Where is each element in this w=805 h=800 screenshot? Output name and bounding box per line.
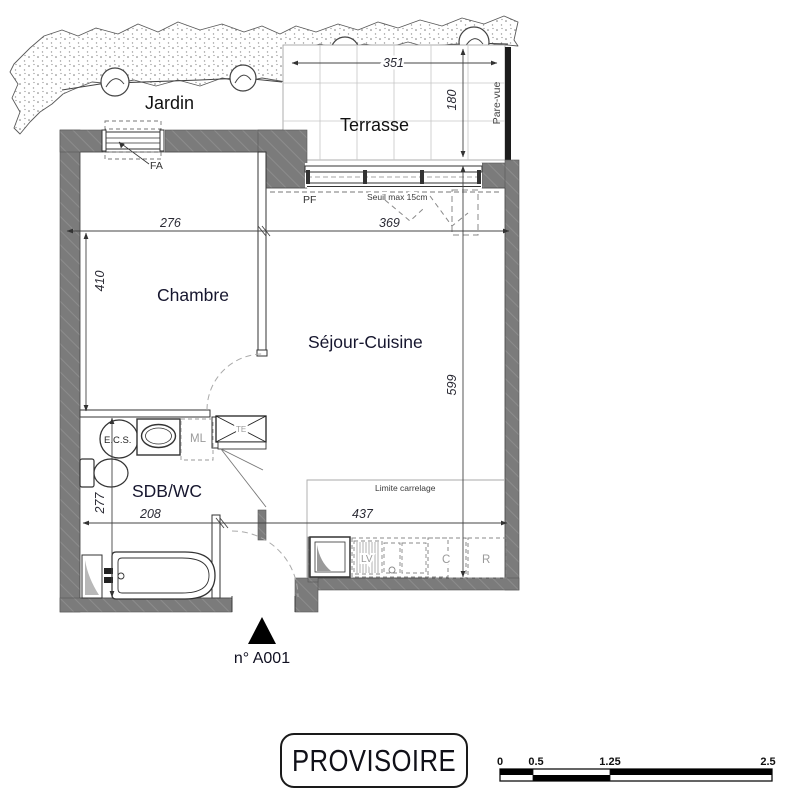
appliance-slot-2 (402, 543, 426, 573)
walls (60, 130, 519, 612)
provisoire-stamp: PROVISOIRE (281, 734, 467, 787)
dishwasher-label: LV (361, 554, 373, 565)
bathtub (104, 552, 215, 599)
dim-sdb-length: 277 (93, 492, 107, 515)
provisoire-text: PROVISOIRE (292, 743, 456, 778)
pare-vue-label: Pare-vue (491, 82, 503, 125)
limite-carrelage-label: Limite carrelage (375, 483, 436, 493)
jardin-label: Jardin (145, 93, 194, 113)
dim-sejour-length: 599 (445, 375, 459, 396)
seuil-label: Seuil max 15cm (367, 192, 427, 202)
water-heater-label: E.C.S. (104, 435, 131, 446)
entrance-marker-triangle (248, 617, 276, 644)
appliance-slot-1 (384, 543, 400, 573)
entrance: n° A001 (232, 531, 298, 667)
dim-chambre-width: 276 (159, 216, 181, 230)
overhead-dashed-zone (452, 190, 478, 235)
floor-plan-drawing: Jardin Terrasse 351 180 Pare-vue (0, 0, 805, 800)
window-fa: FA (102, 121, 165, 172)
washing-machine-label: ML (190, 433, 207, 445)
sdb-door (221, 449, 266, 507)
dim-sejour-width: 369 (379, 216, 400, 230)
scale-bar: 0 0.5 1.25 2.5 (497, 756, 776, 781)
dim-terrasse-width: 351 (383, 56, 404, 70)
terrasse-label: Terrasse (340, 115, 409, 135)
technical-box-label: TE (236, 425, 246, 434)
pare-vue-screen (505, 47, 511, 160)
scale-tick-0: 0 (497, 756, 503, 768)
sdb-area: E.C.S. ML SDB/WC TE (80, 416, 266, 599)
dim-chambre-length: 410 (93, 271, 107, 292)
unit-number-label: n° A001 (234, 650, 290, 667)
sejour-label: Séjour-Cuisine (308, 332, 423, 352)
fa-label: FA (150, 160, 163, 172)
chambre-label: Chambre (157, 285, 229, 305)
fridge-label: R (482, 554, 490, 566)
dimension-lines (67, 166, 509, 597)
toilet-tank (80, 459, 94, 487)
sdb-label: SDB/WC (132, 481, 202, 501)
scale-tick-125: 1.25 (599, 756, 620, 768)
dim-terrasse-depth: 180 (445, 90, 459, 111)
room-edges (80, 152, 505, 598)
dishwasher-symbol: LV (354, 541, 382, 574)
scale-tick-05: 0.5 (528, 756, 543, 768)
terrasse-area: Terrasse 351 180 Pare-vue (283, 45, 511, 160)
kitchen-fixtures: LV C R (310, 537, 506, 578)
chambre-door-swing (207, 354, 263, 410)
dim-sdb-width: 208 (139, 507, 161, 521)
pf-label: PF (303, 194, 316, 206)
dim-cuisine-width: 437 (352, 507, 374, 521)
sliding-direction-mark-2 (430, 196, 468, 226)
floor-plan-page: Jardin Terrasse 351 180 Pare-vue (0, 0, 805, 800)
technical-box-te: TE (216, 416, 266, 449)
bathroom-closet (82, 555, 102, 598)
scale-tick-25: 2.5 (760, 756, 775, 768)
toilet-bowl (94, 459, 128, 487)
dimension-labels: 276 369 410 599 277 208 437 (93, 216, 459, 521)
entrance-door-swing (232, 531, 298, 597)
cooker-label: C (442, 554, 450, 566)
chambre-area: Chambre (157, 285, 263, 410)
